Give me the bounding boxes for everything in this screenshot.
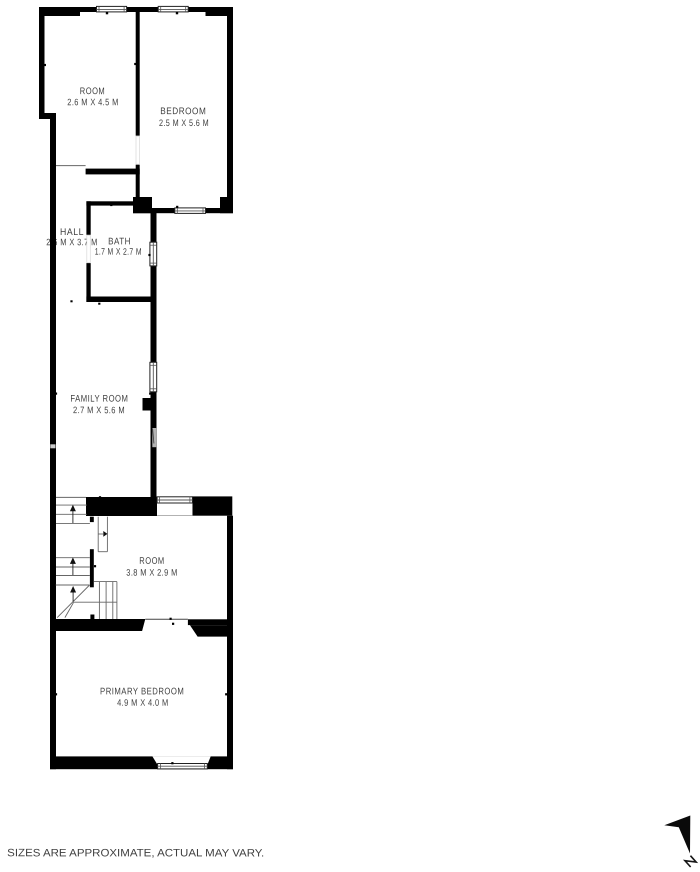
svg-text:2.6 M X 4.5 M: 2.6 M X 4.5 M: [67, 96, 118, 107]
svg-text:BEDROOM: BEDROOM: [160, 106, 206, 117]
svg-text:ROOM: ROOM: [139, 556, 164, 567]
svg-text:PRIMARY BEDROOM: PRIMARY BEDROOM: [100, 686, 184, 697]
svg-text:SIZES ARE APPROXIMATE, ACTUAL: SIZES ARE APPROXIMATE, ACTUAL MAY VARY.: [7, 847, 264, 859]
svg-text:2.5 M X 5.6 M: 2.5 M X 5.6 M: [159, 117, 209, 128]
svg-text:4.9 M X 4.0 M: 4.9 M X 4.0 M: [117, 697, 169, 708]
svg-text:1.7 M X 2.7 M: 1.7 M X 2.7 M: [95, 246, 142, 257]
svg-text:2.7 M X 5.6 M: 2.7 M X 5.6 M: [73, 404, 125, 415]
svg-text:FAMILY ROOM: FAMILY ROOM: [70, 394, 128, 405]
svg-text:3.8 M X 2.9 M: 3.8 M X 2.9 M: [126, 567, 177, 578]
